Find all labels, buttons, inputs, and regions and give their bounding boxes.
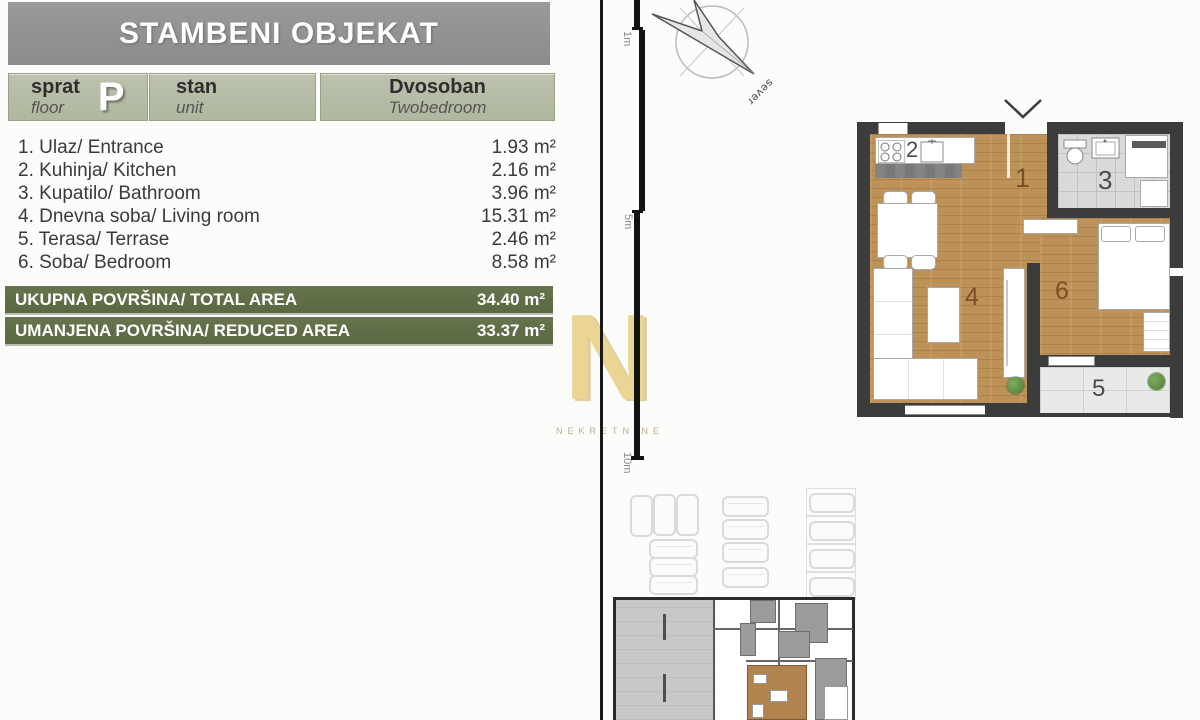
terrace-door xyxy=(1048,356,1095,366)
wall-left xyxy=(857,122,870,417)
scale-label-10m: 10m xyxy=(621,452,633,473)
parking-stall xyxy=(806,544,856,572)
living-window xyxy=(905,405,985,415)
kitchen-backsplash xyxy=(875,164,962,178)
kitchen-sink-icon xyxy=(920,139,944,163)
room-area: 1.93 m² xyxy=(492,137,556,159)
room-label: 3. Kupatilo/ Bathroom xyxy=(18,183,201,205)
floor-labels: sprat floor xyxy=(9,77,80,117)
chair xyxy=(911,255,936,270)
type-label-en: Twobedroom xyxy=(389,98,487,117)
right-wall-notch xyxy=(1170,268,1183,276)
room-label: 4. Dnevna soba/ Living room xyxy=(18,206,260,228)
scale-label-1m: 1m xyxy=(621,31,633,46)
pillow xyxy=(1101,226,1131,242)
floor-label-sr: sprat xyxy=(31,77,80,98)
sofa-horizontal xyxy=(873,358,978,400)
floor-label-en: floor xyxy=(31,98,80,117)
parked-car xyxy=(722,496,769,517)
room-row: 1. Ulaz/ Entrance1.93 m² xyxy=(12,137,558,160)
parking-stall xyxy=(806,488,856,516)
wall-bathroom-bottom xyxy=(1047,208,1183,218)
scale-label-5m: 5m xyxy=(622,214,634,229)
radiator xyxy=(1143,312,1170,352)
total-area-value: 34.40 m² xyxy=(477,290,545,310)
entrance-door-leaf xyxy=(1007,134,1010,178)
unit-label-sr: stan xyxy=(176,77,217,98)
room-number-2: 2 xyxy=(906,137,918,163)
hall-closet xyxy=(1023,219,1078,234)
floor-plan: 1 2 3 4 5 6 xyxy=(855,95,1188,430)
room-area: 8.58 m² xyxy=(492,252,556,274)
wall-top-right xyxy=(1047,122,1183,134)
room-area: 15.31 m² xyxy=(481,206,556,228)
unit-cell: stan unit xyxy=(149,73,316,121)
room-row: 4. Dnevna soba/ Living room15.31 m² xyxy=(12,206,558,229)
entrance-arrow-icon xyxy=(1000,95,1046,121)
parked-car xyxy=(722,567,769,588)
room-row: 2. Kuhinja/ Kitchen2.16 m² xyxy=(12,160,558,183)
floor-cell: sprat floor P xyxy=(8,73,148,121)
parked-car xyxy=(722,519,769,540)
tv-unit-line xyxy=(1006,280,1008,366)
room-area: 2.16 m² xyxy=(492,160,556,182)
unit-labels: stan unit xyxy=(150,77,217,117)
floor-value: P xyxy=(98,75,125,120)
parked-car xyxy=(653,494,676,536)
parked-car xyxy=(676,494,699,536)
site-plan xyxy=(610,483,870,720)
pillow xyxy=(1135,226,1165,242)
room-label: 5. Terasa/ Terrase xyxy=(18,229,169,251)
room-area: 3.96 m² xyxy=(492,183,556,205)
parked-car xyxy=(649,539,698,559)
type-cell: Dvosoban Twobedroom xyxy=(320,73,555,121)
terrace-plant-icon xyxy=(1148,373,1165,390)
stove-icon xyxy=(878,140,905,163)
washing-machine xyxy=(1140,180,1168,207)
parked-car xyxy=(649,575,698,595)
plant-icon xyxy=(1007,377,1024,394)
page-title: STAMBENI OBJEKAT xyxy=(8,2,550,65)
kitchen-window xyxy=(878,123,908,134)
coffee-table xyxy=(927,287,960,343)
dining-table xyxy=(877,203,938,258)
room-row: 3. Kupatilo/ Bathroom3.96 m² xyxy=(12,183,558,206)
compass-icon xyxy=(645,0,780,125)
room-number-3: 3 xyxy=(1098,165,1112,196)
parking-stall xyxy=(806,516,856,544)
watermark-logo: N xyxy=(548,292,668,422)
room-row: 5. Terasa/ Terrase2.46 m² xyxy=(12,229,558,252)
room-number-4: 4 xyxy=(965,283,979,312)
reduced-area-bar: UMANJENA POVRŠINA/ REDUCED AREA 33.37 m² xyxy=(5,317,553,344)
room-label: 1. Ulaz/ Entrance xyxy=(18,137,164,159)
white-room xyxy=(824,686,848,720)
shower-shelf xyxy=(1132,141,1166,148)
gray-room xyxy=(750,600,776,623)
garage-area xyxy=(616,600,715,720)
total-area-label: UKUPNA POVRŠINA/ TOTAL AREA xyxy=(15,290,297,310)
unit-label-en: unit xyxy=(176,98,217,117)
wall-interior xyxy=(1027,263,1040,407)
reduced-area-value: 33.37 m² xyxy=(477,321,545,341)
room-row: 6. Soba/ Bedroom8.58 m² xyxy=(12,252,558,275)
room-number-1: 1 xyxy=(1015,163,1030,194)
terrace-edge xyxy=(1040,413,1183,417)
parked-car xyxy=(649,557,698,577)
room-number-5: 5 xyxy=(1092,375,1105,403)
room-area: 2.46 m² xyxy=(492,229,556,251)
interior-wall xyxy=(713,628,853,630)
gray-room xyxy=(778,631,810,658)
bath-sink-icon xyxy=(1091,137,1120,159)
highlighted-unit xyxy=(747,665,807,720)
type-labels: Dvosoban Twobedroom xyxy=(389,77,487,117)
room-number-6: 6 xyxy=(1055,277,1069,306)
parked-car xyxy=(722,542,769,563)
room-label: 6. Soba/ Bedroom xyxy=(18,252,171,274)
watermark-text: NEKRETNINE xyxy=(540,426,680,436)
gray-room xyxy=(740,623,756,656)
type-label-sr: Dvosoban xyxy=(389,77,487,98)
reduced-area-label: UMANJENA POVRŠINA/ REDUCED AREA xyxy=(15,321,350,341)
parked-car xyxy=(630,495,653,537)
room-label: 2. Kuhinja/ Kitchen xyxy=(18,160,176,182)
total-area-bar: UKUPNA POVRŠINA/ TOTAL AREA 34.40 m² xyxy=(5,286,553,313)
building-outline xyxy=(613,597,855,720)
wall-bathroom-left xyxy=(1047,134,1058,218)
parking-stall xyxy=(806,572,856,600)
divider-line xyxy=(600,0,603,720)
toilet-icon xyxy=(1063,139,1087,165)
